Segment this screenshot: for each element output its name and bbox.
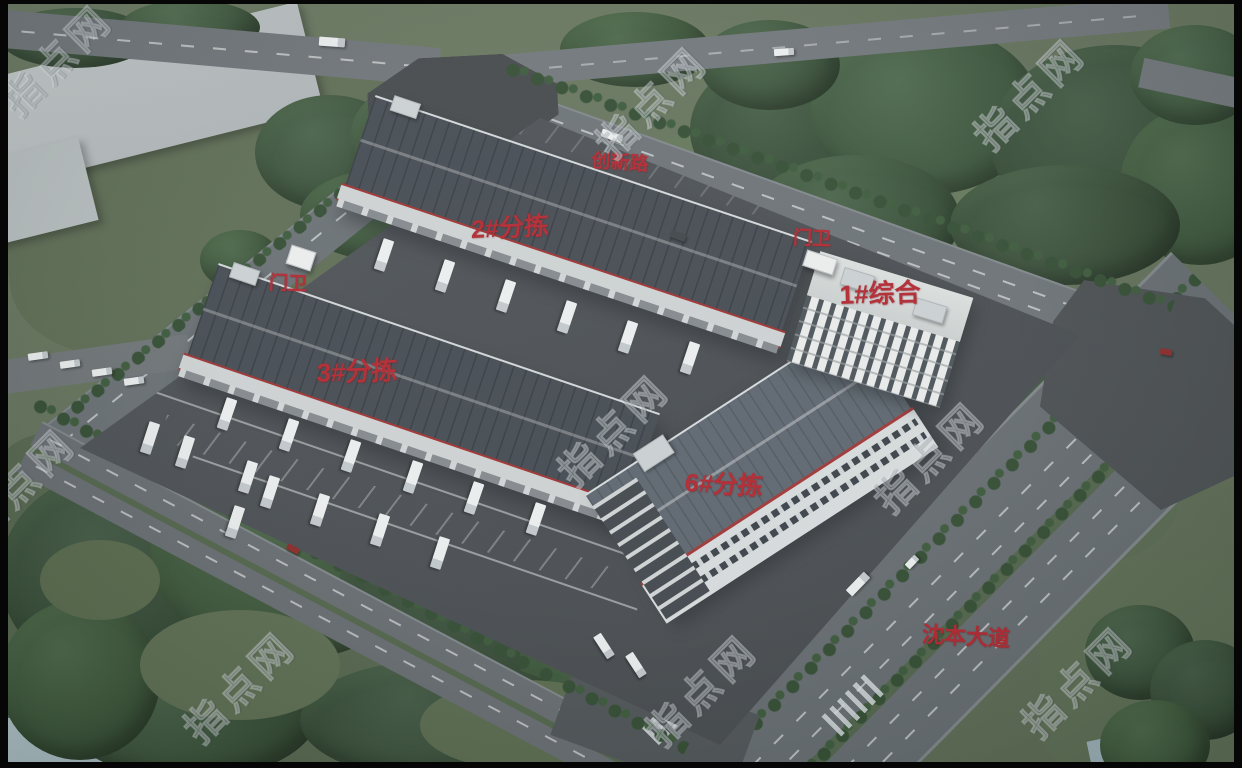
- tree-cluster: [0, 600, 160, 760]
- screenshot-frame: 2#分拣 3#分拣 6#分拣 1#综合 门卫 门卫 创新路 沈本大道 指点网指点…: [0, 0, 1242, 768]
- warehouse-2-label: 2#分拣: [471, 206, 549, 246]
- warehouse-6-label: 6#分拣: [683, 463, 764, 503]
- gatehouse-east-label: 门卫: [793, 223, 832, 251]
- office-building-label: 1#综合: [839, 272, 921, 312]
- aerial-rendering-scene: 2#分拣 3#分拣 6#分拣 1#综合 门卫 门卫 创新路 沈本大道 指点网指点…: [0, 0, 1242, 768]
- letterbox-bar-top: [0, 0, 1242, 4]
- letterbox-bar-right: [1234, 0, 1242, 768]
- grass-clearing: [40, 540, 160, 620]
- truck: [319, 37, 346, 48]
- letterbox-bar-bottom: [0, 762, 1242, 768]
- warehouse-3-label: 3#分拣: [316, 350, 398, 390]
- gatehouse-west-label: 门卫: [269, 268, 308, 296]
- letterbox-bar-left: [0, 0, 8, 768]
- shenben-avenue-label: 沈本大道: [921, 617, 1011, 654]
- truck: [774, 48, 794, 56]
